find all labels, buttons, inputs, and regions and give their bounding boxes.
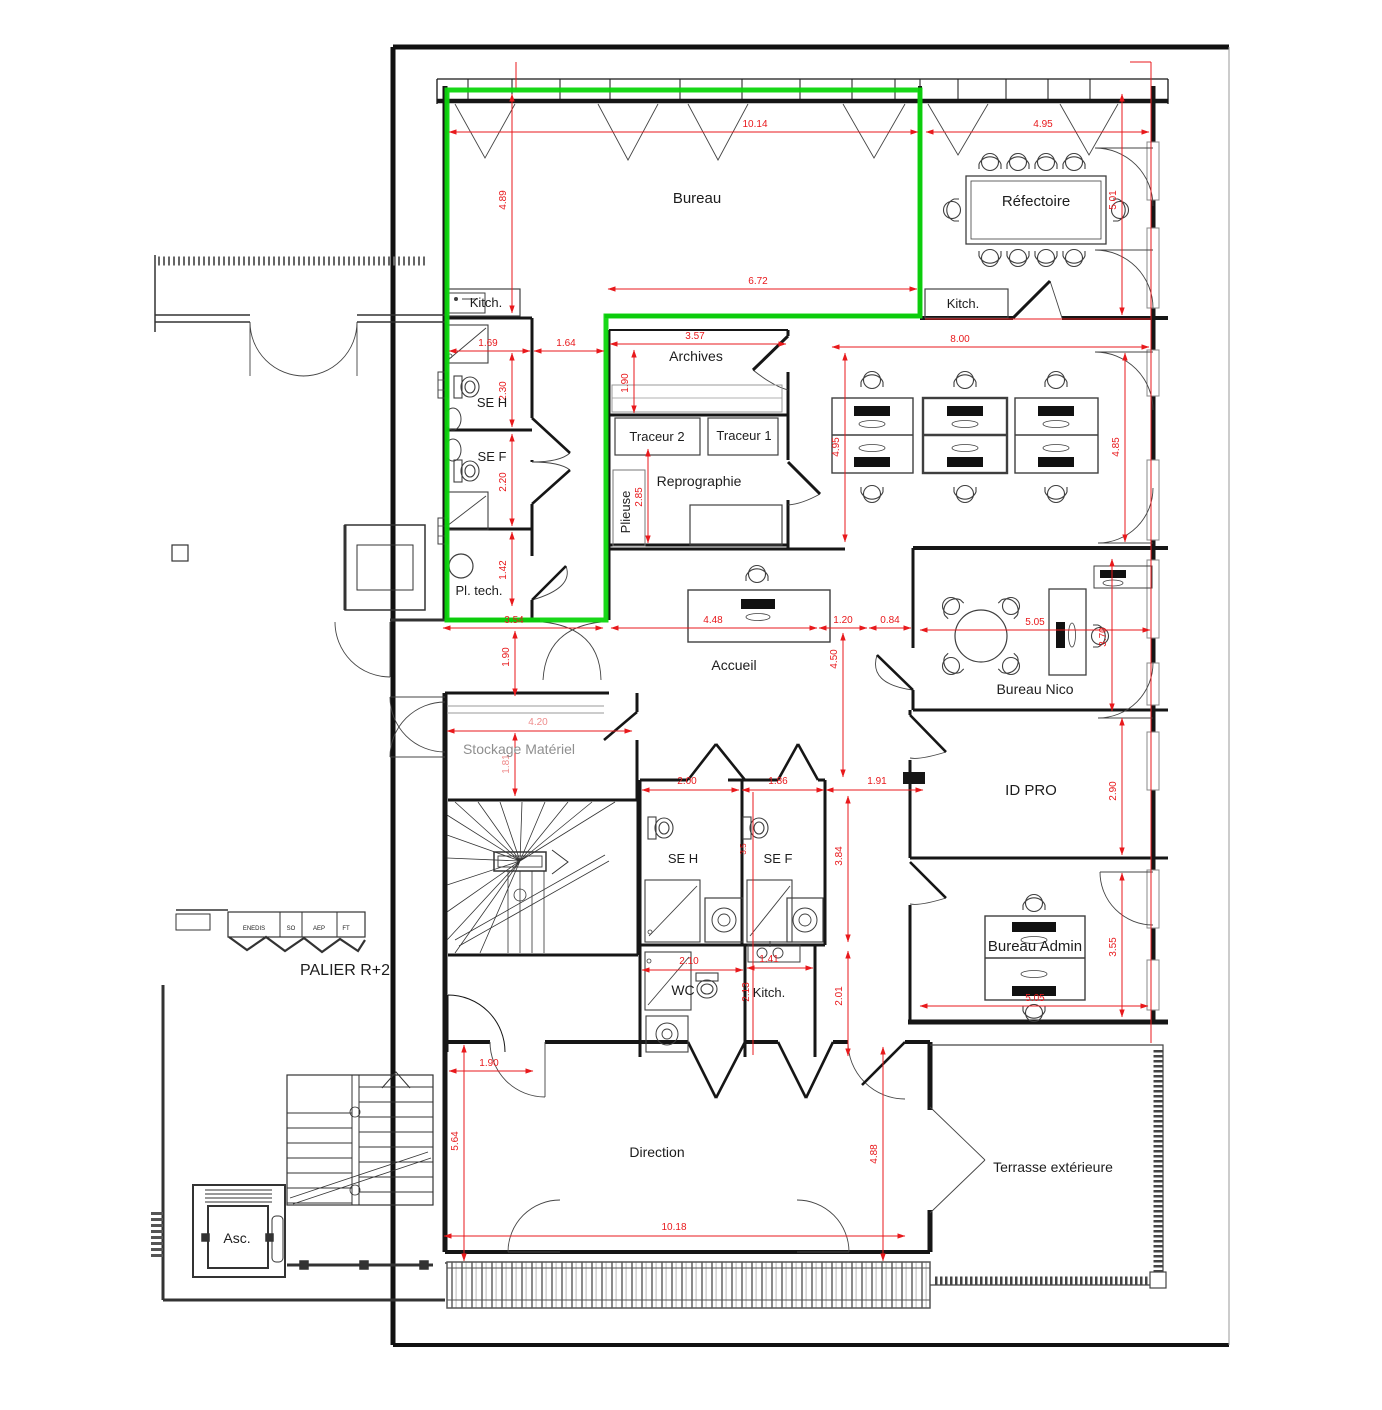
room-label-accueil: Accueil xyxy=(711,657,756,673)
window-door-arcs xyxy=(250,104,1153,1252)
dimension-value-6-72-4: 6.72 xyxy=(748,276,768,287)
dimension-value-4-95-1: 4.95 xyxy=(1033,119,1053,130)
room-label-wc: WC xyxy=(671,982,694,998)
dimension-value-5-05-20: 5.05 xyxy=(1025,617,1045,628)
room-label-palier-r-2: PALIER R+2 xyxy=(300,962,390,979)
exterior-walls xyxy=(437,79,1168,1263)
room-label-bureau-nico: Bureau Nico xyxy=(996,681,1073,697)
room-label-bureau: Bureau xyxy=(673,190,721,207)
room-label-traceur-2: Traceur 2 xyxy=(629,429,684,444)
dimension-value-1-90-9: 1.90 xyxy=(620,373,631,393)
dimension-value-3-70-21: 3.70 xyxy=(1098,627,1109,647)
dimension-value-8-00-8: 8.00 xyxy=(950,334,970,345)
dimension-value-4-50-22: 4.50 xyxy=(829,649,840,669)
dimension-value-3-57-7: 3.57 xyxy=(685,331,705,342)
room-label-ft: FT xyxy=(342,926,350,932)
room-label-asc: Asc. xyxy=(223,1230,250,1246)
room-label-so: SO xyxy=(287,926,296,932)
room-label-kitch: Kitch. xyxy=(470,295,503,310)
dimension-value-2-10-32: 2.10 xyxy=(679,956,699,967)
room-label-aep: AEP xyxy=(313,926,325,932)
room-label-enedis: ENEDIS xyxy=(243,926,265,932)
room-label-kitch: Kitch. xyxy=(753,985,786,1000)
dimension-value-3-84-29: 3.84 xyxy=(834,846,845,866)
room-label-plieuse: Plieuse xyxy=(618,491,633,534)
dimension-value-1-20-18: 1.20 xyxy=(833,615,853,626)
dimension-value-1-90-23: 1.90 xyxy=(501,647,512,667)
palier-left-wing xyxy=(155,255,445,1300)
room-label-pl-tech: Pl. tech. xyxy=(456,583,503,598)
dimension-value-4-48-17: 4.48 xyxy=(703,615,723,626)
balcony-slats xyxy=(447,1262,930,1308)
dimension-value-5-05-37: 5.05 xyxy=(1025,993,1045,1004)
room-label-traceur-1: Traceur 1 xyxy=(716,428,771,443)
floor-plan-sheet: 10.144.954.895.016.721.691.643.578.001.9… xyxy=(0,0,1382,1410)
right-wall-windows xyxy=(1147,142,1159,1010)
furniture xyxy=(438,154,1152,1053)
dimension-value-1-64-6: 1.64 xyxy=(556,338,576,349)
dimension-layer: 10.144.954.895.016.721.691.643.578.001.9… xyxy=(443,94,1150,1261)
dimension-value-4-88-40: 4.88 xyxy=(869,1144,880,1164)
dimension-value-2-01-35: 2.01 xyxy=(834,986,845,1006)
room-label-kitch: Kitch. xyxy=(947,296,980,311)
dimension-value-4-89-2: 4.89 xyxy=(498,190,509,210)
dimension-value-4-85-15: 4.85 xyxy=(1111,437,1122,457)
dimension-value-3-55-36: 3.55 xyxy=(1108,937,1119,957)
dimension-value-3-5-30: 3.5 xyxy=(739,843,748,855)
dimension-value-3-54-16: 3.54 xyxy=(504,615,524,626)
room-label-id-pro: ID PRO xyxy=(1005,782,1057,799)
room-label-direction: Direction xyxy=(629,1144,684,1160)
room-label-bureau-admin: Bureau Admin xyxy=(988,938,1082,955)
dimension-value-1-69-5: 1.69 xyxy=(478,338,498,349)
dimension-value-2-90-31: 2.90 xyxy=(1108,781,1119,801)
dimension-value-2-00-26: 2.00 xyxy=(677,776,697,787)
dimension-value-2-85-13: 2.85 xyxy=(634,487,645,507)
dimension-value-5-01-3: 5.01 xyxy=(1108,190,1119,210)
dimension-value-1-41-33: 1.41 xyxy=(759,954,779,965)
room-label-se-h: SE H xyxy=(668,851,698,866)
room-label-reprographie: Reprographie xyxy=(657,473,742,489)
room-label-terrasse-ext-rieure: Terrasse extérieure xyxy=(993,1159,1113,1175)
sheet-frame xyxy=(393,47,1229,1345)
room-label-archives: Archives xyxy=(669,348,723,364)
room-label-r-fectoire: Réfectoire xyxy=(1002,193,1070,210)
dimension-value-1-91-28: 1.91 xyxy=(867,776,887,787)
room-label-se-h: SE H xyxy=(477,395,507,410)
red-overlay-lines xyxy=(516,62,1151,1055)
dimension-value-4-20-24: 4.20 xyxy=(528,717,548,728)
door-leaves xyxy=(448,281,1050,1098)
interior-walls xyxy=(445,86,1168,1057)
dimension-value-0-84-19: 0.84 xyxy=(880,615,900,626)
dimension-value-10-18-41: 10.18 xyxy=(661,1222,686,1233)
floor-plan-svg: 10.144.954.895.016.721.691.643.578.001.9… xyxy=(0,0,1382,1410)
room-label-se-f: SE F xyxy=(478,449,507,464)
dimension-value-2-20-11: 2.20 xyxy=(498,472,509,492)
dimension-value-10-14-0: 10.14 xyxy=(742,119,767,130)
dimension-value-1-86-27: 1.86 xyxy=(768,776,788,787)
winder-staircase xyxy=(447,802,615,953)
dimension-value-1-90-38: 1.90 xyxy=(479,1058,499,1069)
dimension-value-1-42-12: 1.42 xyxy=(498,560,509,580)
dimension-value-2-13-34: 2.13 xyxy=(741,982,752,1002)
dimension-value-4-95-14: 4.95 xyxy=(831,437,842,457)
dimension-value-5-64-39: 5.64 xyxy=(450,1131,461,1151)
room-label-stockage-mat-riel: Stockage Matériel xyxy=(463,741,575,757)
room-label-se-f: SE F xyxy=(764,851,793,866)
